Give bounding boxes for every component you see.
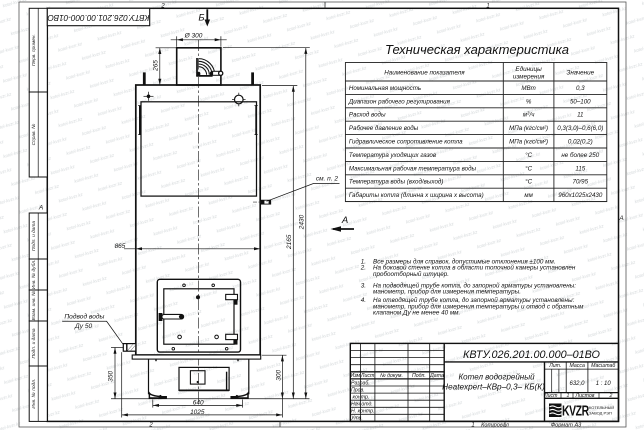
svg-text:Инв. № дубл.: Инв. № дубл. [31, 260, 37, 290]
svg-text:Нач.отд.: Нач.отд. [351, 402, 373, 408]
svg-text:А: А [38, 205, 43, 212]
svg-text:пробоотборный штуцер.: пробоотборный штуцер. [373, 270, 449, 278]
svg-text:МПа (кгс/см²): МПа (кгс/см²) [509, 139, 548, 146]
svg-text:Техническая характеристика: Техническая характеристика [385, 42, 569, 57]
svg-text:KVZR: KVZR [562, 403, 589, 419]
svg-text:2430: 2430 [298, 214, 305, 230]
svg-text:11: 11 [577, 112, 583, 119]
svg-text:МВт: МВт [521, 85, 535, 92]
svg-text:632,0: 632,0 [569, 381, 585, 387]
svg-text:Копировал: Копировал [481, 422, 510, 428]
svg-text:манометр, прибор для измерения: манометр, прибор для измерения температу… [373, 288, 521, 296]
svg-text:измерения: измерения [513, 74, 545, 81]
svg-text:1 : 10: 1 : 10 [596, 381, 612, 387]
svg-text:Формат А3: Формат А3 [551, 422, 582, 428]
svg-text:2: 2 [148, 423, 153, 429]
svg-text:0,3(3,0)–0,6(6,0): 0,3(3,0)–0,6(6,0) [557, 125, 603, 132]
svg-text:640: 640 [193, 399, 204, 406]
svg-text:0,3: 0,3 [576, 85, 585, 92]
svg-text:70/95: 70/95 [573, 179, 589, 186]
svg-text:4.: 4. [361, 297, 366, 304]
svg-text:Единицы: Единицы [515, 65, 542, 73]
svg-text:КВТУ.026.201.00.000-01ВО: КВТУ.026.201.00.000-01ВО [47, 13, 150, 22]
svg-text:Утв.: Утв. [351, 416, 363, 422]
svg-text:960х1025х2430: 960х1025х2430 [558, 192, 603, 199]
svg-text:контр.: контр. [353, 395, 370, 401]
svg-text:КВТУ.026.201.00.000–01ВО: КВТУ.026.201.00.000–01ВО [463, 349, 601, 361]
svg-text:0,02(0,2): 0,02(0,2) [568, 139, 593, 146]
svg-text:Подвод воды: Подвод воды [64, 313, 104, 321]
svg-text:КОТЕЛЬНЫЙ: КОТЕЛЬНЫЙ [589, 405, 614, 410]
svg-text:Подп.: Подп. [412, 373, 426, 379]
svg-text:№ докум.: № докум. [380, 373, 403, 379]
svg-text:Максимальная рабочая температу: Максимальная рабочая температура воды [349, 165, 477, 172]
svg-text:50–100: 50–100 [570, 98, 591, 105]
svg-text:Изм: Изм [350, 373, 360, 379]
svg-text:265: 265 [152, 60, 159, 72]
svg-text:Инв. № подл.: Инв. № подл. [31, 379, 37, 409]
svg-text:не более 250: не более 250 [561, 152, 599, 159]
svg-text:Котел водогрейный: Котел водогрейный [458, 373, 535, 382]
svg-text:Габариты котла (длинна х ширин: Габариты котла (длинна х ширина х высота… [349, 192, 484, 199]
svg-text:см. п. 2: см. п. 2 [316, 175, 339, 182]
svg-text:Н. контр.: Н. контр. [351, 409, 374, 415]
svg-text:МПа (кгс/см²): МПа (кгс/см²) [509, 125, 548, 132]
svg-text:Рабочее давление воды: Рабочее давление воды [349, 125, 419, 132]
svg-text:Лист: Лист [543, 393, 558, 399]
svg-text:1: 1 [471, 423, 474, 429]
svg-text:Листов: Листов [575, 393, 595, 399]
svg-text:Расход воды: Расход воды [349, 112, 386, 119]
svg-text:865: 865 [115, 243, 126, 250]
svg-text:2165: 2165 [286, 234, 293, 250]
svg-text:м3/ч: м3/ч [523, 111, 535, 119]
svg-text:Ду 50: Ду 50 [74, 323, 93, 330]
svg-text:Лит.: Лит. [548, 363, 561, 369]
svg-text:°С: °С [525, 152, 532, 159]
svg-text:Масса: Масса [570, 363, 585, 369]
svg-text:Температура воды (вход/выход): Температура воды (вход/выход) [349, 179, 443, 186]
svg-text:Пров.: Пров. [351, 387, 365, 393]
svg-text:Дата: Дата [429, 373, 444, 379]
svg-text:Масштаб: Масштаб [591, 363, 616, 369]
svg-text:2: 2 [609, 393, 613, 399]
svg-text:Подп. и дата: Подп. и дата [31, 328, 37, 358]
svg-text:2: 2 [160, 4, 165, 10]
svg-text:Наименование показателя: Наименование показателя [384, 70, 465, 77]
svg-text:350: 350 [108, 370, 115, 381]
svg-text:°С: °С [525, 165, 532, 172]
svg-text:Heatexpert–КВр–0,3– КБ(К): Heatexpert–КВр–0,3– КБ(К) [442, 383, 545, 392]
svg-text:300: 300 [276, 369, 283, 380]
svg-text:Взам. инв. №: Взам. инв. № [31, 291, 37, 321]
svg-text:1025: 1025 [190, 409, 205, 416]
svg-text:°С: °С [525, 179, 532, 186]
svg-text:Справ. №: Справ. № [31, 124, 37, 146]
svg-text:Лист: Лист [360, 373, 375, 379]
svg-text:Разраб.: Разраб. [351, 380, 370, 386]
svg-text:115: 115 [575, 165, 585, 172]
svg-text:Гидравлическое сопротивление к: Гидравлическое сопротивление котла [349, 139, 463, 146]
svg-text:1: 1 [567, 393, 570, 399]
svg-text:Температура уходящих газов: Температура уходящих газов [349, 152, 437, 159]
svg-text:мм: мм [524, 192, 533, 199]
svg-text:ЗАВОД РЭП: ЗАВОД РЭП [589, 411, 612, 416]
svg-text:Ø 300: Ø 300 [184, 32, 203, 39]
svg-text:3.: 3. [361, 282, 366, 289]
svg-text:Б: Б [198, 13, 204, 24]
svg-text:А: А [618, 215, 623, 222]
svg-text:Подп. и дата: Подп. и дата [31, 221, 37, 251]
svg-text:клапаном Ду не менее 40 мм.: клапаном Ду не менее 40 мм. [373, 310, 460, 317]
svg-text:%: % [526, 98, 532, 105]
svg-text:Номинальная мощность: Номинальная мощность [349, 85, 421, 92]
svg-text:1: 1 [486, 4, 489, 10]
svg-text:Диапазон рабочего регулировани: Диапазон рабочего регулирования [348, 98, 451, 105]
svg-text:2.: 2. [360, 265, 366, 272]
svg-text:А: А [341, 215, 348, 226]
svg-text:Значение: Значение [566, 70, 594, 77]
svg-text:Перв. примен.: Перв. примен. [31, 34, 37, 66]
